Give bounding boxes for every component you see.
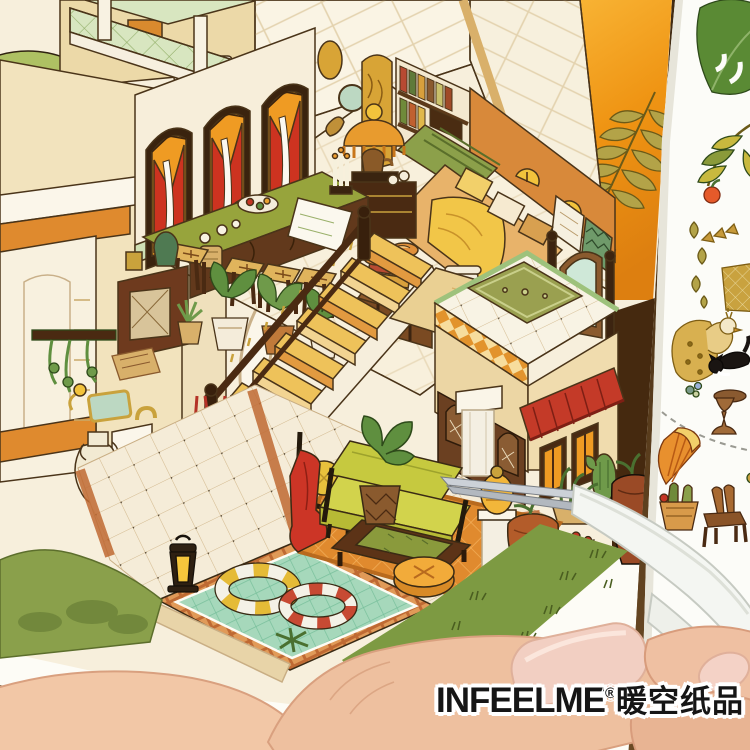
photo-illustration [0,0,750,750]
orange-pouf [394,557,454,597]
brand-chinese-name: 暖空纸品 [616,684,744,719]
product-photo: INFEELME®暖空纸品 [0,0,750,750]
brand-watermark: INFEELME®暖空纸品 [436,676,746,724]
brand-name: INFEELME [436,681,605,720]
registered-mark: ® [605,685,616,702]
candles [330,148,352,195]
